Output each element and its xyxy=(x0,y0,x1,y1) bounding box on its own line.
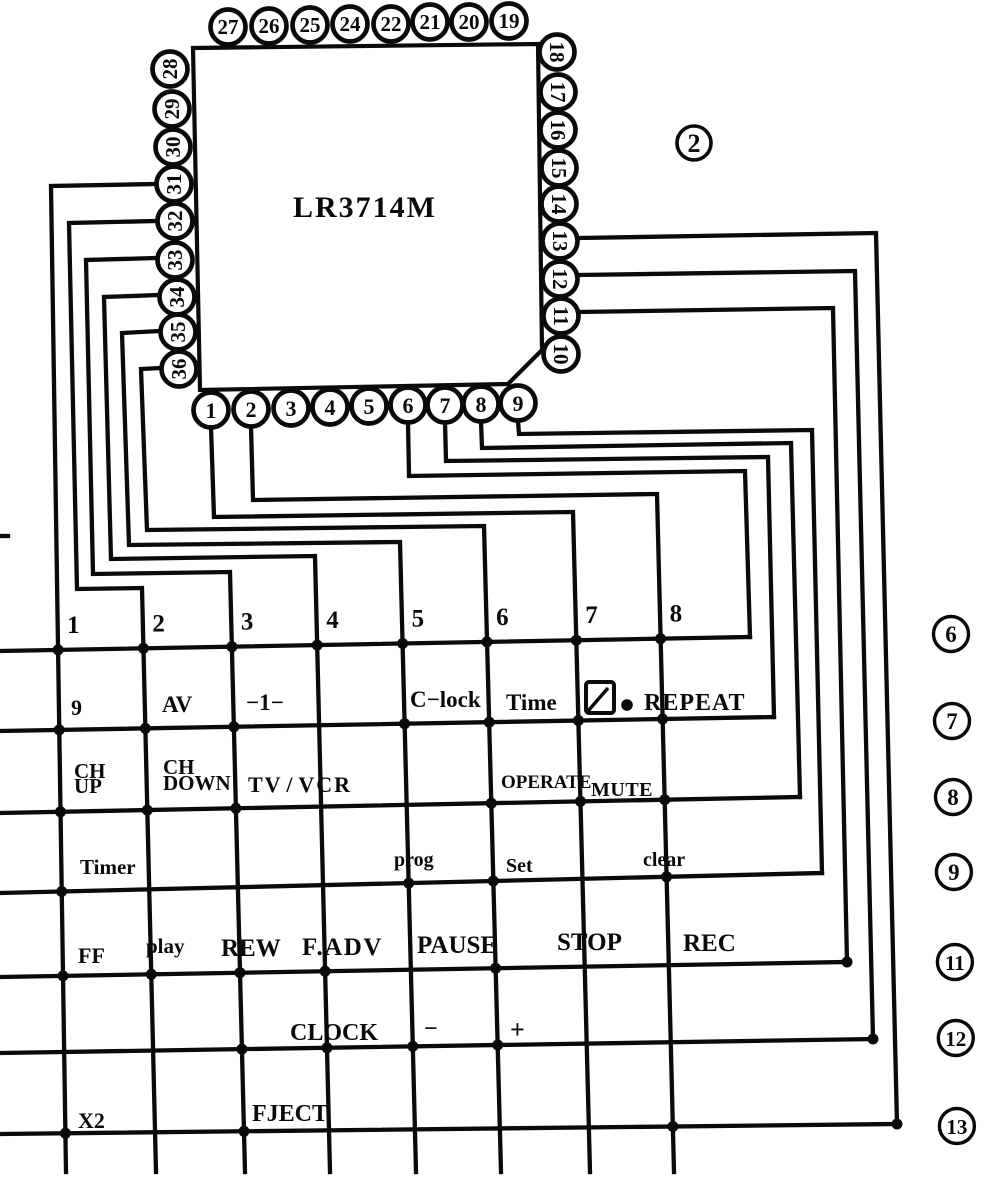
svg-text:4: 4 xyxy=(326,607,339,634)
svg-text:clear: clear xyxy=(643,849,685,871)
svg-text:12: 12 xyxy=(945,1027,966,1051)
svg-text:35: 35 xyxy=(166,322,190,343)
svg-text:12: 12 xyxy=(548,269,572,290)
svg-text:3: 3 xyxy=(241,609,254,636)
svg-text:FF: FF xyxy=(78,943,105,968)
svg-text:9: 9 xyxy=(513,391,524,416)
svg-text:28: 28 xyxy=(158,59,182,80)
svg-text:MUTE: MUTE xyxy=(591,779,653,801)
svg-text:2: 2 xyxy=(152,610,165,637)
svg-text:9: 9 xyxy=(948,860,960,885)
svg-text:19: 19 xyxy=(499,9,520,33)
svg-text:F.ADV: F.ADV xyxy=(302,934,383,961)
svg-text:25: 25 xyxy=(300,13,321,37)
svg-text:8: 8 xyxy=(476,392,487,417)
svg-text:21: 21 xyxy=(420,10,441,34)
svg-text:Time: Time xyxy=(506,690,557,715)
svg-text:REPEAT: REPEAT xyxy=(644,690,746,716)
svg-text:1: 1 xyxy=(206,398,217,423)
svg-text:C−lock: C−lock xyxy=(410,687,481,712)
svg-text:32: 32 xyxy=(163,211,187,232)
svg-text:5: 5 xyxy=(412,606,425,633)
svg-text:X2: X2 xyxy=(78,1108,105,1133)
svg-text:26: 26 xyxy=(259,14,280,38)
svg-text:play: play xyxy=(146,934,185,958)
svg-text:−1−: −1− xyxy=(246,690,284,715)
svg-text:31: 31 xyxy=(162,174,186,195)
svg-text:30: 30 xyxy=(161,137,185,158)
svg-text:2: 2 xyxy=(246,397,257,422)
svg-text:8: 8 xyxy=(947,785,959,810)
svg-text:22: 22 xyxy=(381,12,402,36)
svg-text:REC: REC xyxy=(683,930,736,957)
svg-text:4: 4 xyxy=(325,395,336,420)
svg-text:−: − xyxy=(424,1016,438,1042)
svg-text:PAUSE: PAUSE xyxy=(417,932,497,959)
svg-text:Timer: Timer xyxy=(80,855,136,879)
svg-text:18: 18 xyxy=(545,42,569,63)
svg-text:36: 36 xyxy=(167,359,191,380)
svg-text:STOP: STOP xyxy=(557,929,622,956)
svg-text:14: 14 xyxy=(547,194,571,216)
svg-text:TV / VCR: TV / VCR xyxy=(248,772,352,797)
svg-text:CLOCK: CLOCK xyxy=(290,1020,378,1046)
svg-text:FJECT: FJECT xyxy=(252,1101,328,1127)
svg-text:27: 27 xyxy=(218,15,239,39)
svg-text:2: 2 xyxy=(688,129,701,158)
svg-text:9: 9 xyxy=(71,695,82,720)
svg-text:DOWN: DOWN xyxy=(163,771,231,795)
svg-text:11: 11 xyxy=(549,306,573,326)
svg-text:REW: REW xyxy=(221,935,281,962)
svg-text:+: + xyxy=(510,1015,525,1044)
svg-text:33: 33 xyxy=(163,250,187,271)
svg-text:10: 10 xyxy=(549,344,573,365)
svg-text:8: 8 xyxy=(670,601,683,628)
svg-text:5: 5 xyxy=(364,394,375,419)
svg-text:1: 1 xyxy=(67,612,80,639)
svg-text:11: 11 xyxy=(945,951,965,975)
svg-text:OPERATE: OPERATE xyxy=(501,772,591,793)
svg-text:15: 15 xyxy=(547,158,571,179)
svg-text:20: 20 xyxy=(459,10,480,34)
svg-text:Set: Set xyxy=(506,855,533,877)
svg-text:17: 17 xyxy=(546,82,570,103)
svg-text:34: 34 xyxy=(165,286,189,308)
svg-text:7: 7 xyxy=(585,602,598,629)
svg-text:6: 6 xyxy=(945,622,957,647)
svg-text:7: 7 xyxy=(440,393,451,418)
svg-text:7: 7 xyxy=(946,709,958,734)
svg-text:24: 24 xyxy=(340,12,362,36)
svg-text:UP: UP xyxy=(74,774,102,798)
svg-text:6: 6 xyxy=(403,393,414,418)
svg-text:3: 3 xyxy=(286,396,297,421)
svg-text:prog: prog xyxy=(394,849,434,871)
svg-text:6: 6 xyxy=(496,604,509,631)
svg-text:16: 16 xyxy=(546,120,570,141)
svg-text:AV: AV xyxy=(162,692,193,717)
svg-text:LR3714M: LR3714M xyxy=(293,191,437,224)
svg-text:29: 29 xyxy=(160,99,184,120)
svg-text:13: 13 xyxy=(946,1115,967,1139)
svg-text:13: 13 xyxy=(548,231,572,252)
